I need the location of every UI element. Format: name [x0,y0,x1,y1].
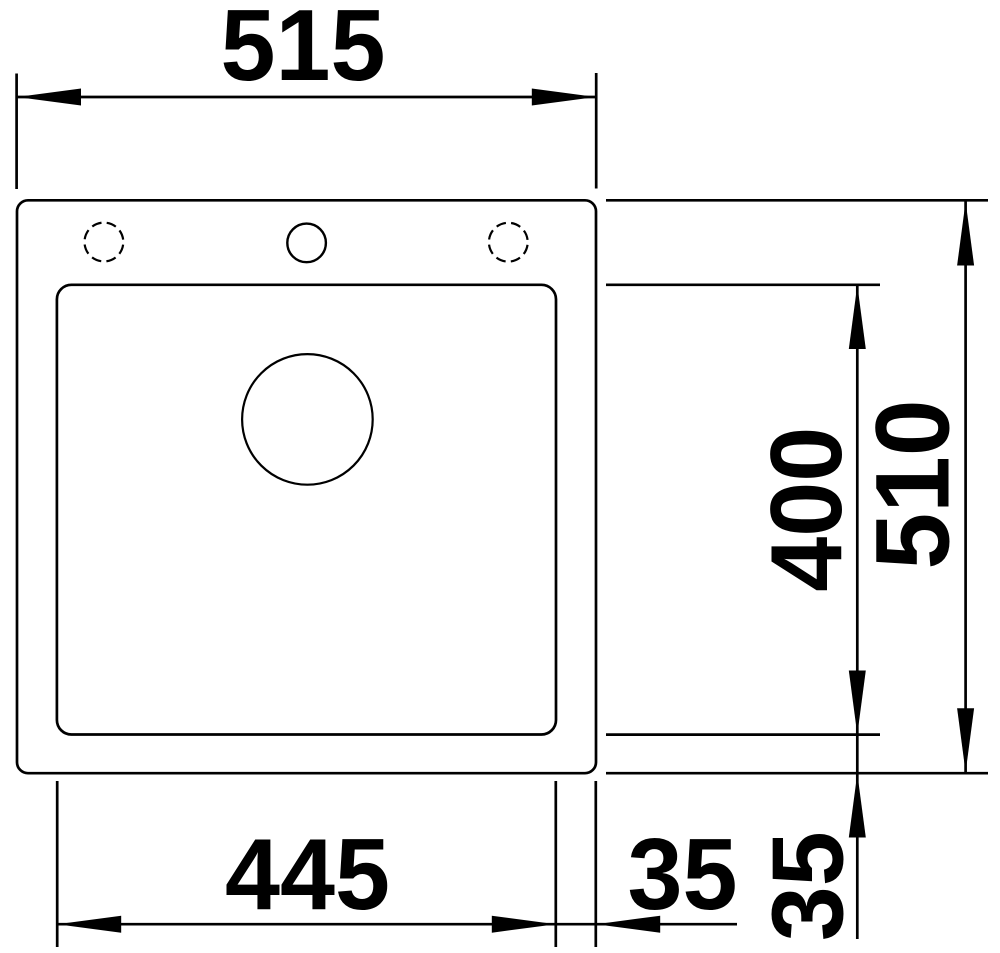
svg-text:445: 445 [225,819,390,931]
svg-text:400: 400 [751,427,863,592]
svg-text:515: 515 [221,0,386,102]
svg-text:510: 510 [855,400,972,570]
svg-text:35: 35 [628,819,738,931]
svg-text:35: 35 [753,831,865,941]
